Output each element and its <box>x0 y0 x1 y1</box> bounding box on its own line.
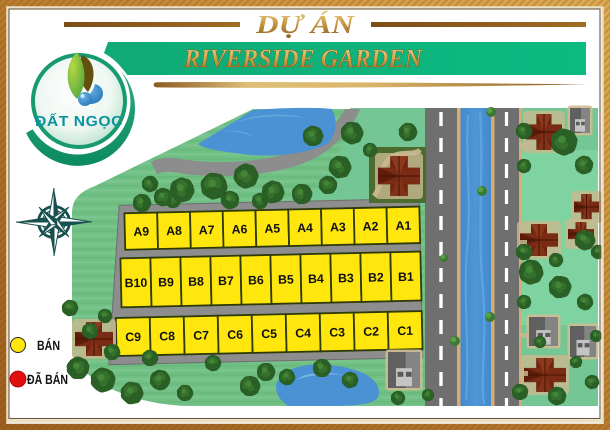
svg-text:DỰ ÁN: DỰ ÁN <box>255 10 356 39</box>
svg-text:C3: C3 <box>329 325 345 339</box>
svg-text:B2: B2 <box>368 270 384 284</box>
svg-text:A7: A7 <box>199 223 215 237</box>
svg-text:RIVERSIDE GARDEN: RIVERSIDE GARDEN <box>183 44 423 73</box>
svg-text:B9: B9 <box>158 275 174 289</box>
svg-text:B4: B4 <box>308 272 324 286</box>
svg-text:B6: B6 <box>248 273 264 287</box>
svg-text:C9: C9 <box>125 330 141 344</box>
svg-text:C8: C8 <box>159 329 175 343</box>
svg-text:B7: B7 <box>218 274 234 288</box>
svg-text:C6: C6 <box>227 328 243 342</box>
svg-text:A9: A9 <box>133 225 149 239</box>
svg-text:A6: A6 <box>231 222 247 236</box>
svg-text:B1: B1 <box>398 270 414 284</box>
svg-text:C1: C1 <box>397 324 413 338</box>
svg-text:B8: B8 <box>188 274 204 288</box>
svg-text:C4: C4 <box>295 326 311 340</box>
svg-text:C5: C5 <box>261 327 277 341</box>
svg-text:A3: A3 <box>330 220 346 234</box>
svg-text:A4: A4 <box>297 221 313 235</box>
svg-text:A2: A2 <box>363 219 379 233</box>
svg-text:A8: A8 <box>166 224 182 238</box>
svg-text:A1: A1 <box>395 219 411 233</box>
svg-text:BÁN: BÁN <box>37 338 60 353</box>
svg-text:A5: A5 <box>264 222 280 236</box>
svg-text:ĐÃ BÁN: ĐÃ BÁN <box>27 371 68 387</box>
svg-text:C2: C2 <box>363 325 379 339</box>
svg-text:B10: B10 <box>125 276 148 291</box>
svg-text:C7: C7 <box>193 328 209 342</box>
svg-text:B5: B5 <box>278 272 294 286</box>
svg-text:B3: B3 <box>338 271 354 285</box>
svg-text:ĐẤT NGỌC: ĐẤT NGỌC <box>35 113 123 130</box>
